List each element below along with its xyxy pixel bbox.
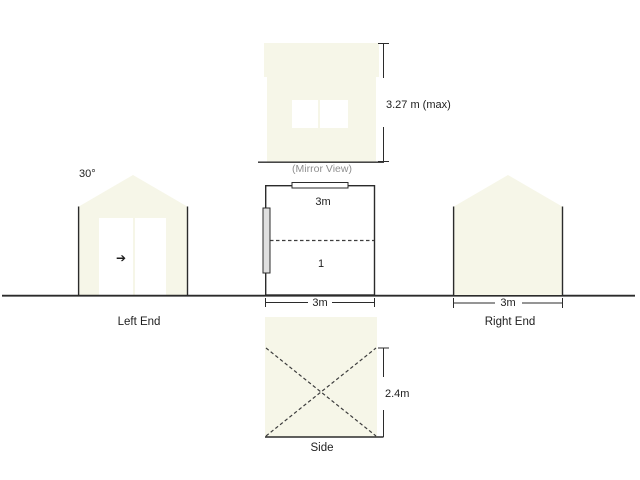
right-width-label: 3m	[500, 297, 515, 310]
diagram-shapes	[0, 0, 640, 480]
mirror-roof-band	[264, 43, 379, 77]
side-view-body	[265, 317, 377, 437]
right-end-shape	[453, 175, 563, 295]
right-end-gable	[453, 175, 563, 295]
side-view-label: Side	[310, 442, 333, 455]
roof-angle-label: 30°	[79, 168, 96, 181]
door-swing-arrow-icon: ➔	[116, 252, 126, 264]
floor-plan-window-symbol	[292, 183, 348, 189]
mirror-view-caption: (Mirror View)	[292, 163, 352, 176]
floor-plan-door-symbol	[263, 208, 270, 273]
left-end-label: Left End	[118, 316, 161, 329]
plan-bay-number-label: 1	[318, 258, 324, 271]
left-end-door-right-panel	[135, 218, 166, 295]
side-view-shape	[265, 317, 384, 437]
mirror-window-right	[320, 100, 348, 128]
side-height-label: 2.4m	[385, 388, 409, 401]
mirror-view-shape	[258, 43, 384, 162]
drawing-canvas: 30° 3.27 m (max) (Mirror View) ➔ Left En…	[0, 0, 640, 480]
plan-width-label: 3m	[312, 297, 327, 310]
left-end-shape	[78, 175, 188, 295]
mirror-window-left	[292, 100, 318, 128]
mirror-height-label: 3.27 m (max)	[386, 99, 451, 112]
plan-depth-label: 3m	[315, 196, 330, 209]
right-end-label: Right End	[485, 316, 536, 329]
